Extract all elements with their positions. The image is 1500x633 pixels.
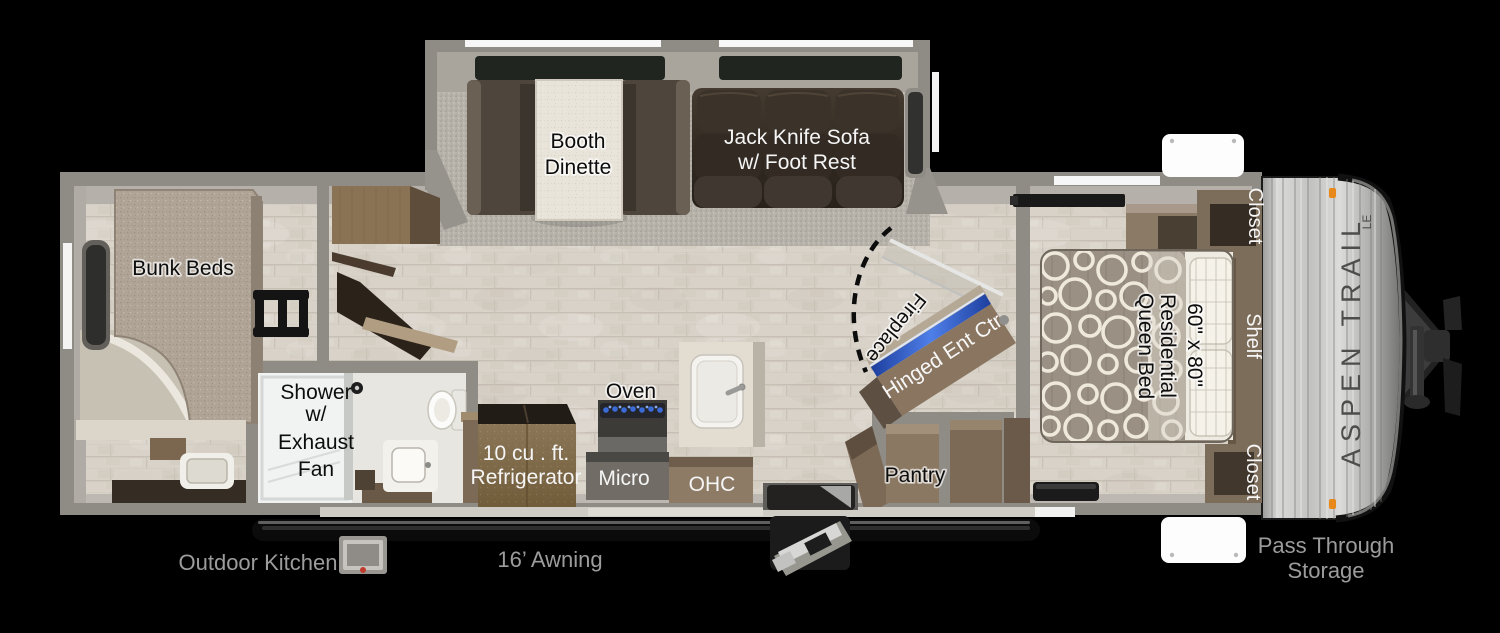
svg-text:Pass Through: Pass Through — [1258, 533, 1395, 558]
svg-text:ASPEN TRAIL: ASPEN TRAIL — [1336, 215, 1366, 467]
svg-text:LE: LE — [1360, 215, 1374, 230]
svg-text:Residential: Residential — [1156, 294, 1179, 398]
svg-text:10 cu . ft.: 10 cu . ft. — [483, 442, 569, 465]
svg-text:Shelf: Shelf — [1242, 313, 1264, 359]
svg-text:Bunk Beds: Bunk Beds — [132, 257, 234, 280]
svg-text:OHC: OHC — [689, 473, 736, 496]
svg-text:w/: w/ — [305, 403, 327, 426]
svg-text:60" x 80": 60" x 80" — [1183, 303, 1206, 387]
svg-text:Shower: Shower — [280, 381, 351, 404]
svg-text:Jack Knife Sofa: Jack Knife Sofa — [724, 126, 870, 149]
svg-text:Oven: Oven — [606, 380, 656, 403]
svg-text:Booth: Booth — [551, 130, 606, 153]
svg-text:Queen Bed: Queen Bed — [1134, 293, 1157, 399]
svg-text:Micro: Micro — [598, 467, 649, 490]
svg-text:16’ Awning: 16’ Awning — [497, 547, 602, 572]
svg-text:Fan: Fan — [298, 458, 334, 481]
svg-text:Dinette: Dinette — [545, 156, 612, 179]
svg-text:Closet: Closet — [1244, 188, 1266, 245]
svg-text:Pantry: Pantry — [885, 464, 946, 487]
svg-text:Outdoor Kitchen: Outdoor Kitchen — [179, 550, 338, 575]
svg-text:Storage: Storage — [1287, 558, 1364, 583]
svg-text:Closet: Closet — [1242, 444, 1264, 501]
svg-text:w/ Foot Rest: w/ Foot Rest — [737, 151, 856, 174]
svg-text:Exhaust: Exhaust — [278, 431, 354, 454]
svg-text:Refrigerator: Refrigerator — [471, 466, 582, 489]
